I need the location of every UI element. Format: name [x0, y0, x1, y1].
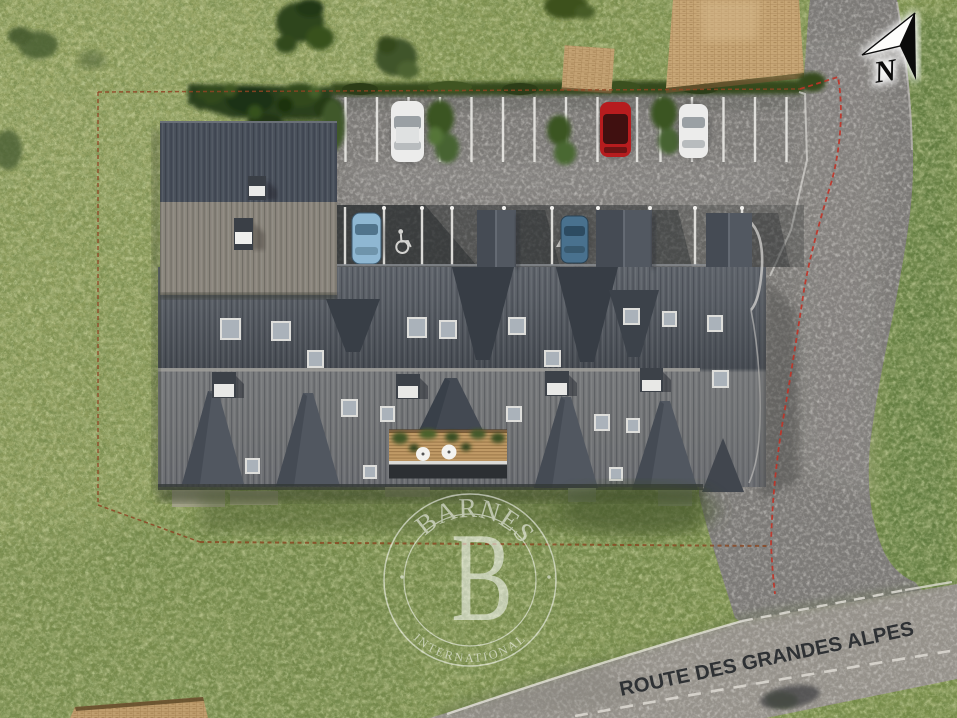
svg-text:B: B [451, 508, 513, 648]
